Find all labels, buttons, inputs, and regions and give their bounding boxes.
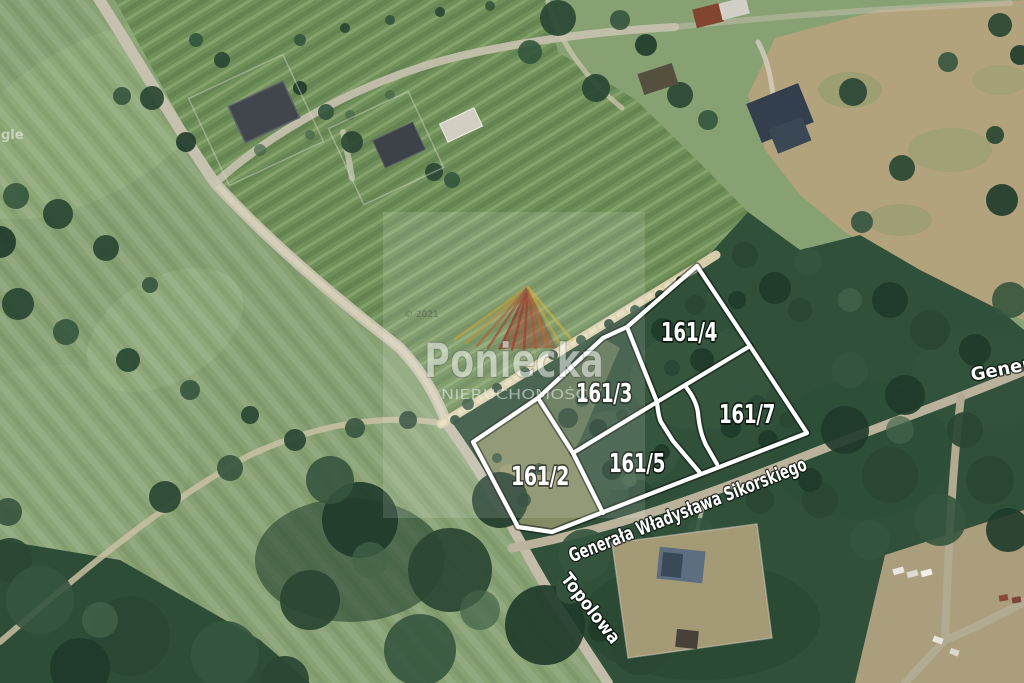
map-stage: 161/2 161/3 161/4 161/5 161/7 Generała W… xyxy=(0,0,1024,683)
shed xyxy=(675,629,699,649)
parcel-label-161-7: 161/7 xyxy=(719,400,775,430)
parcel-label-161-4: 161/4 xyxy=(661,318,717,348)
google-logo-fragment: gle xyxy=(1,128,24,143)
imagery-credit: © 2021 xyxy=(404,310,439,320)
watermark-subtitle: NIERUCHOMOŚCI xyxy=(441,387,593,403)
satellite-map: 161/2 161/3 161/4 161/5 161/7 Generała W… xyxy=(0,0,1024,683)
watermark: Poniecka NIERUCHOMOŚCI © 2021 xyxy=(383,212,645,518)
watermark-brand: Poniecka xyxy=(424,334,604,389)
